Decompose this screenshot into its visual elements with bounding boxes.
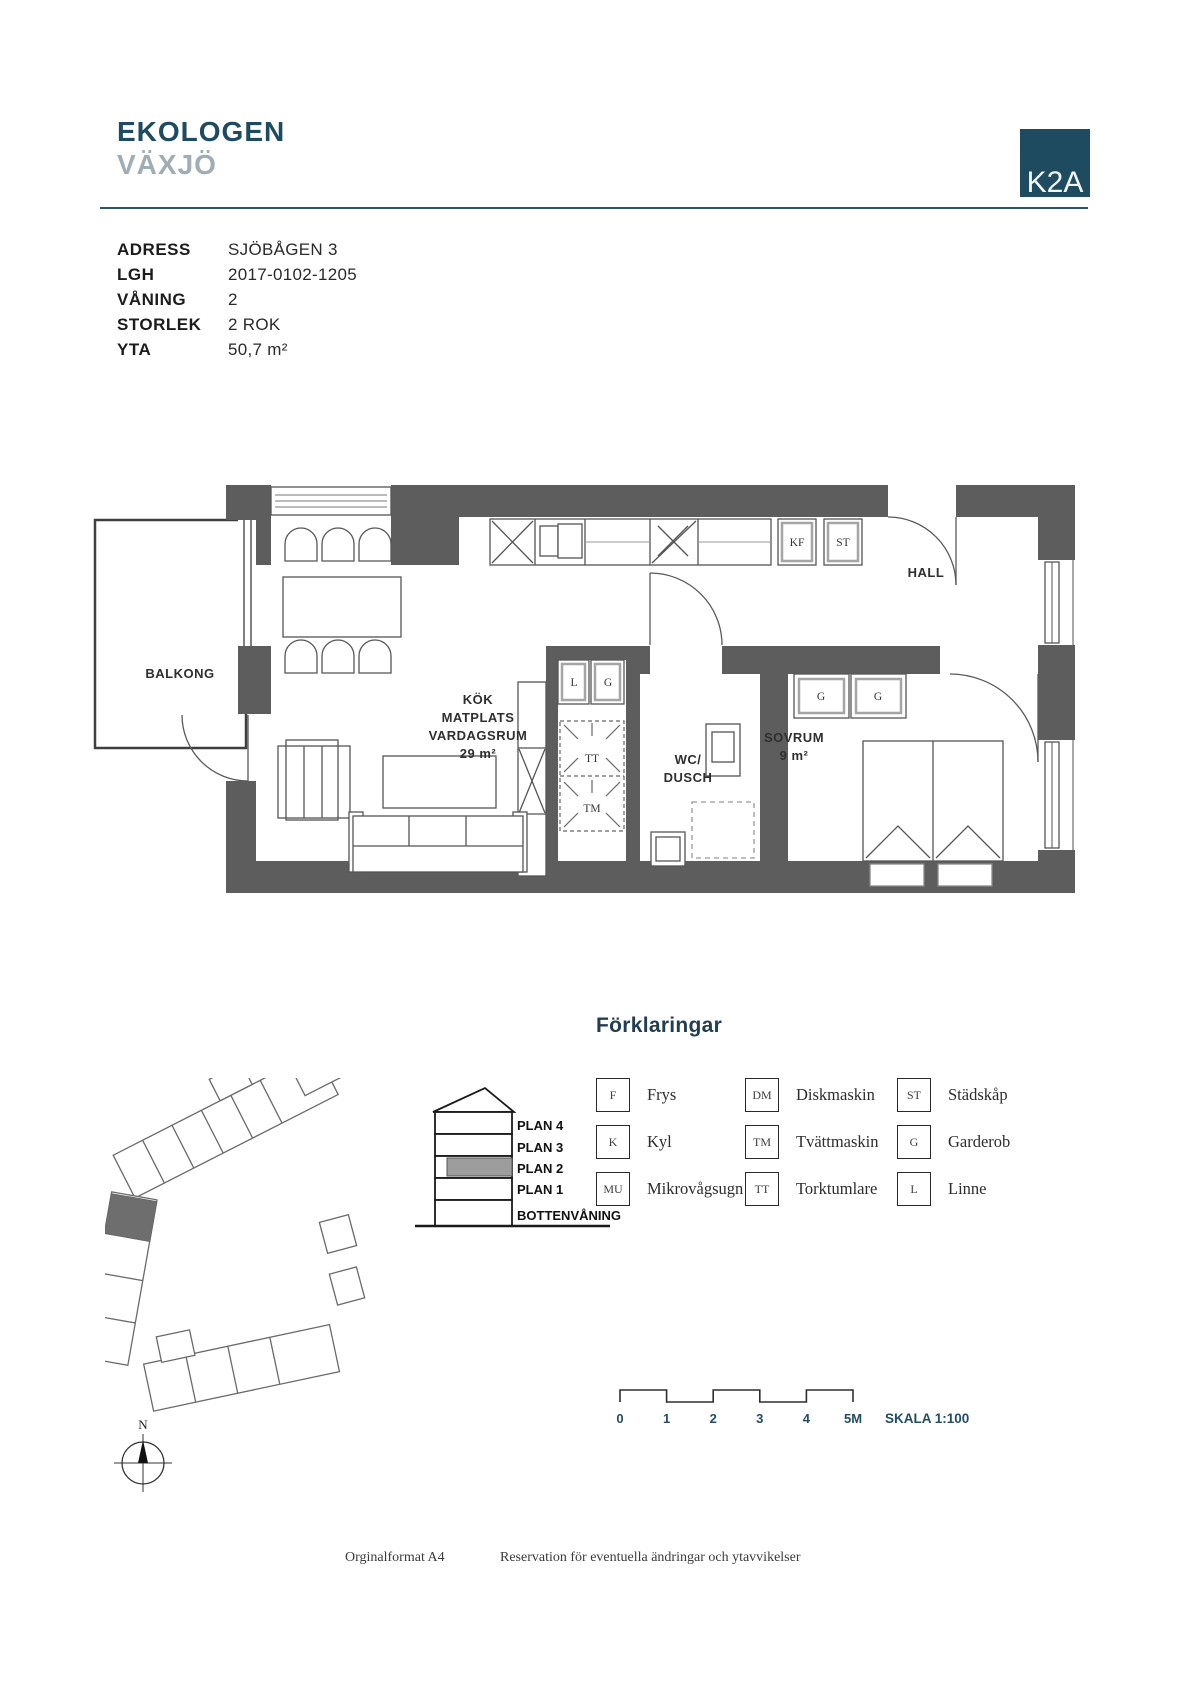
legend-title: Förklaringar [596, 1014, 722, 1038]
floor-label-bottenvaning: BOTTENVÅNING [517, 1208, 621, 1223]
legend-box: DM [745, 1078, 779, 1112]
info-label: LGH [117, 265, 228, 285]
armchair [278, 746, 350, 818]
highlighted-unit [105, 1194, 157, 1241]
legend-box: TM [745, 1125, 779, 1159]
tag-tt: TT [585, 753, 599, 765]
k2a-logo-text: K2A [1027, 169, 1084, 198]
info-value: SJÖBÅGEN 3 [228, 240, 338, 260]
info-value: 2017-0102-1205 [228, 265, 357, 285]
footer-disclaimer: Reservation för eventuella ändringar och… [500, 1550, 801, 1566]
chair-icon [285, 528, 317, 561]
info-row-adress: ADRESS SJÖBÅGEN 3 [117, 240, 357, 265]
legend-item-garderob: G Garderob [897, 1125, 1010, 1159]
tag-tm: TM [583, 803, 600, 815]
legend-box: G [897, 1125, 931, 1159]
info-label: VÅNING [117, 290, 228, 310]
legend-box: ST [897, 1078, 931, 1112]
scale-ratio-label: SKALA 1:100 [885, 1411, 969, 1426]
wc-door-arc [650, 573, 722, 645]
info-row-vaning: VÅNING 2 [117, 290, 357, 315]
tag-g-bed2: G [874, 691, 882, 703]
info-row-yta: YTA 50,7 m² [117, 340, 357, 365]
chair-icon [359, 528, 391, 561]
chair-icon [322, 528, 354, 561]
city-subtitle: VÄXJÖ [117, 149, 217, 181]
apartment-info: ADRESS SJÖBÅGEN 3 LGH 2017-0102-1205 VÅN… [117, 240, 357, 365]
legend-item-stadskap: ST Städskåp [897, 1078, 1008, 1112]
window-hall [1038, 560, 1075, 645]
floor-label-plan2: PLAN 2 [517, 1161, 563, 1176]
wc-fixtures [651, 724, 754, 866]
coffee-table [383, 756, 496, 808]
floor-label-plan1: PLAN 1 [517, 1182, 563, 1197]
room-label-kitchen-1: KÖK [463, 692, 494, 707]
tag-g-closet: G [604, 677, 612, 689]
scale-tick-2: 2 [710, 1411, 717, 1426]
header-divider [100, 207, 1088, 209]
legend-box: TT [745, 1172, 779, 1206]
floor-label-plan3: PLAN 3 [517, 1140, 563, 1155]
stove-icon [540, 526, 558, 556]
legend-item-tvattmaskin: TM Tvättmaskin [745, 1125, 878, 1159]
balcony-outline [95, 520, 246, 748]
project-title: EKOLOGEN [117, 116, 285, 148]
highlighted-floor [447, 1158, 512, 1176]
north-label: N [138, 1417, 148, 1432]
chair-icon [285, 640, 317, 673]
room-label-hall: HALL [908, 565, 945, 580]
chair-icon [359, 640, 391, 673]
tag-l: L [570, 677, 577, 689]
floorplan-document: EKOLOGEN VÄXJÖ K2A ADRESS SJÖBÅGEN 3 LGH… [0, 0, 1190, 1683]
scale-tick-4: 4 [803, 1411, 811, 1426]
info-value: 2 [228, 290, 238, 310]
floor-label-plan4: PLAN 4 [517, 1118, 564, 1133]
compass: N [114, 1417, 172, 1492]
footer-format-note: Orginalformat A4 [345, 1550, 445, 1566]
info-row-lgh: LGH 2017-0102-1205 [117, 265, 357, 290]
building-footprint [105, 1078, 365, 1411]
sofa [353, 816, 523, 872]
scale-bar-line [620, 1390, 853, 1402]
floor-plan: BALKONG KÖK MATPLATS VARDAGSRUM 29 m² HA… [88, 446, 1080, 911]
shower-area [692, 802, 754, 858]
window-bedroom [1038, 740, 1075, 850]
chair-icon [322, 640, 354, 673]
bedroom-wardrobes [794, 674, 906, 718]
roof [433, 1088, 514, 1112]
kitchen-counter [490, 519, 862, 565]
scale-tick-1: 1 [663, 1411, 670, 1426]
info-label: YTA [117, 340, 228, 360]
room-label-wc-1: WC/ [675, 752, 702, 767]
site-plan: N [105, 1078, 385, 1508]
info-value: 50,7 m² [228, 340, 288, 360]
window-balcony-glass [238, 520, 256, 646]
info-label: STORLEK [117, 315, 228, 335]
room-label-kitchen-3: VARDAGSRUM [429, 728, 528, 743]
dining-set [283, 528, 401, 673]
room-label-balcony: BALKONG [145, 666, 214, 681]
dining-table [283, 577, 401, 637]
k2a-logo: K2A [1020, 129, 1090, 197]
room-area-kitchen: 29 m² [460, 746, 497, 761]
tag-kf: KF [790, 537, 805, 549]
north-needle [138, 1440, 148, 1463]
legend-box: L [897, 1172, 931, 1206]
room-label-bedroom: SOVRUM [764, 730, 824, 745]
scale-tick-3: 3 [756, 1411, 763, 1426]
tag-g-bed1: G [817, 691, 825, 703]
scale-bar: 0 1 2 3 4 5M SKALA 1:100 [600, 1378, 1040, 1433]
legend-item-diskmaskin: DM Diskmaskin [745, 1078, 875, 1112]
scale-tick-5m: 5M [844, 1411, 862, 1426]
room-area-bedroom: 9 m² [780, 748, 809, 763]
legend-item-torktumlare: TT Torktumlare [745, 1172, 877, 1206]
info-row-storlek: STORLEK 2 ROK [117, 315, 357, 340]
building-section: PLAN 4 PLAN 3 PLAN 2 PLAN 1 BOTTENVÅNING [400, 1082, 730, 1252]
room-label-wc-2: DUSCH [664, 770, 713, 785]
info-value: 2 ROK [228, 315, 281, 335]
info-label: ADRESS [117, 240, 228, 260]
scale-tick-0: 0 [616, 1411, 623, 1426]
legend-item-linne: L Linne [897, 1172, 987, 1206]
room-label-kitchen-2: MATPLATS [442, 710, 515, 725]
hall-closets [558, 660, 624, 704]
tag-st: ST [836, 537, 849, 549]
